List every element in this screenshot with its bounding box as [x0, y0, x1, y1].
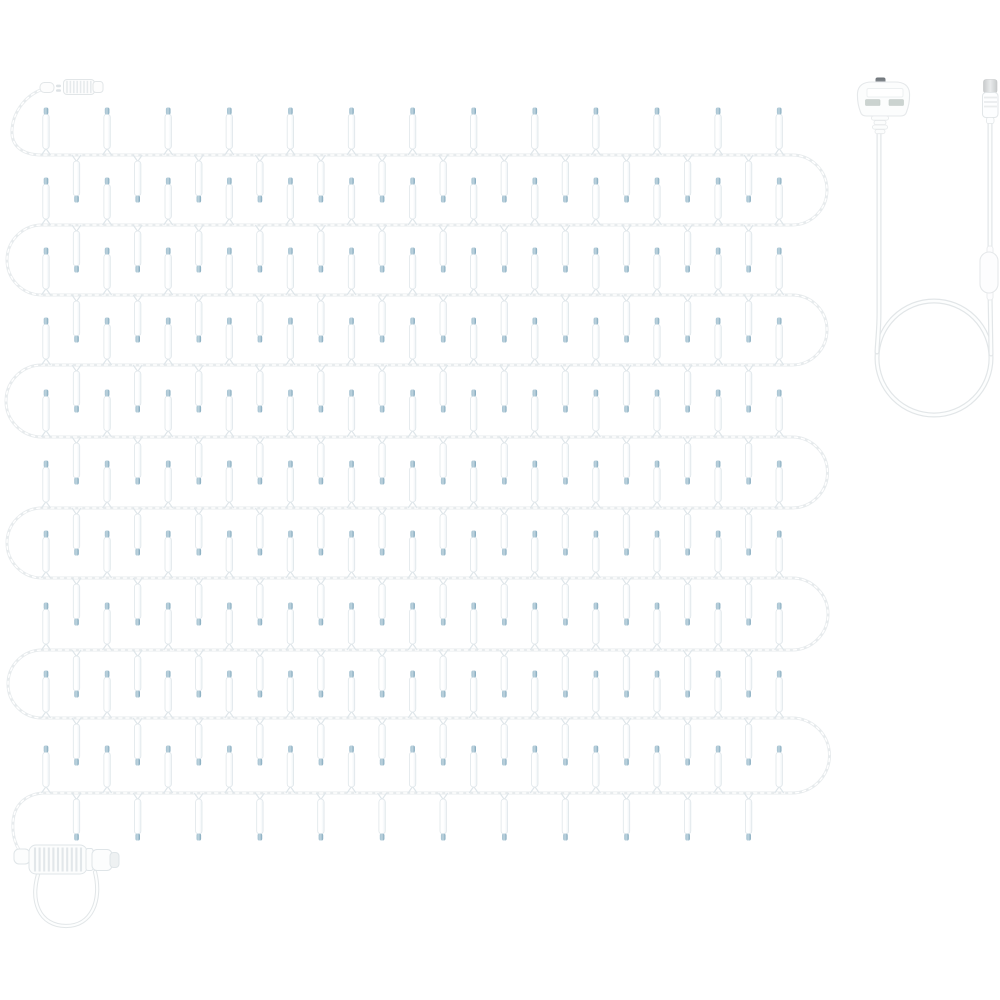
mini-bulb — [286, 531, 295, 579]
mini-bulb — [683, 155, 692, 203]
mini-bulb — [591, 108, 600, 156]
mini-bulb — [72, 225, 81, 273]
mini-bulb — [469, 461, 478, 509]
mini-bulb — [683, 578, 692, 626]
mini-bulb — [500, 295, 509, 343]
mini-bulb — [225, 318, 234, 366]
mini-bulb — [530, 671, 539, 719]
mini-bulb — [561, 225, 570, 273]
mini-bulb — [500, 155, 509, 203]
mini-bulb — [408, 603, 417, 651]
mini-bulb — [42, 603, 51, 651]
mini-bulb — [378, 650, 387, 698]
mini-bulb — [775, 531, 784, 579]
mini-bulb — [225, 108, 234, 156]
mini-bulb — [316, 508, 325, 556]
mini-bulb — [744, 295, 753, 343]
mini-bulb — [744, 650, 753, 698]
mini-bulb — [622, 365, 631, 413]
mini-bulb — [469, 531, 478, 579]
mini-bulb — [469, 746, 478, 794]
cable-ferrule — [14, 849, 30, 864]
mini-bulb — [775, 390, 784, 438]
strain-relief-rib — [874, 121, 886, 125]
mini-bulb — [744, 365, 753, 413]
mini-bulb — [286, 248, 295, 296]
mini-bulb — [286, 178, 295, 226]
mini-bulb — [561, 295, 570, 343]
mini-bulb — [469, 603, 478, 651]
mini-bulb — [408, 531, 417, 579]
mini-bulb — [316, 650, 325, 698]
mini-bulb — [255, 793, 264, 841]
mini-bulb — [225, 531, 234, 579]
mini-bulb — [347, 603, 356, 651]
mini-bulb — [347, 178, 356, 226]
mini-bulb — [622, 437, 631, 485]
mini-bulb — [316, 225, 325, 273]
mini-bulb — [286, 461, 295, 509]
mini-bulb — [744, 578, 753, 626]
string-end-connector — [14, 845, 119, 926]
power-lead — [857, 78, 998, 416]
mini-bulb — [775, 248, 784, 296]
mini-bulb — [683, 718, 692, 766]
mini-bulb — [286, 603, 295, 651]
mini-bulb — [42, 671, 51, 719]
mini-bulb — [775, 178, 784, 226]
mini-bulb — [775, 318, 784, 366]
mini-bulb — [255, 295, 264, 343]
mini-bulb — [530, 108, 539, 156]
mini-bulb — [133, 155, 142, 203]
mini-bulb — [561, 365, 570, 413]
mini-bulb — [408, 318, 417, 366]
mini-bulb — [164, 248, 173, 296]
mini-bulb — [164, 108, 173, 156]
mini-bulb — [775, 603, 784, 651]
mini-bulb — [194, 650, 203, 698]
mini-bulb — [744, 437, 753, 485]
product-photo — [0, 0, 1000, 1000]
mini-bulb — [255, 437, 264, 485]
mini-bulb — [72, 508, 81, 556]
mini-bulb — [469, 390, 478, 438]
mini-bulb — [72, 793, 81, 841]
mini-bulb — [683, 225, 692, 273]
mini-bulb — [347, 248, 356, 296]
mini-bulb — [194, 225, 203, 273]
mini-bulb — [530, 603, 539, 651]
mini-bulb — [255, 365, 264, 413]
mini-bulb — [133, 437, 142, 485]
string-start-connector — [40, 80, 103, 95]
mini-bulb — [653, 178, 662, 226]
mini-bulb — [744, 718, 753, 766]
mini-bulb — [347, 108, 356, 156]
inline-controller — [980, 246, 998, 300]
connector-cap — [984, 80, 998, 94]
mini-bulb — [255, 718, 264, 766]
mini-bulb — [316, 578, 325, 626]
mini-bulb — [378, 225, 387, 273]
mini-bulb — [194, 508, 203, 556]
mini-bulb — [316, 155, 325, 203]
mini-bulb — [103, 108, 112, 156]
mini-bulb — [591, 390, 600, 438]
mini-bulb — [714, 461, 723, 509]
mini-bulb — [683, 437, 692, 485]
string-lights-scene — [0, 0, 1000, 1000]
mini-bulb — [714, 390, 723, 438]
mini-bulb — [561, 155, 570, 203]
mini-bulb — [378, 578, 387, 626]
socket-end-cap — [93, 82, 103, 93]
mini-bulb — [714, 248, 723, 296]
mini-bulb — [714, 746, 723, 794]
mini-bulb — [714, 318, 723, 366]
mini-bulb — [439, 225, 448, 273]
mini-bulb — [744, 155, 753, 203]
mini-bulb — [683, 650, 692, 698]
mini-bulb — [255, 225, 264, 273]
mini-bulb — [378, 155, 387, 203]
mini-bulb — [561, 718, 570, 766]
mini-bulb — [133, 365, 142, 413]
mini-bulb — [530, 531, 539, 579]
mini-bulb — [133, 578, 142, 626]
mini-bulb — [133, 295, 142, 343]
mini-bulb — [225, 603, 234, 651]
mini-bulb — [408, 746, 417, 794]
mini-bulb — [439, 365, 448, 413]
mini-bulb — [500, 793, 509, 841]
mini-bulb — [225, 390, 234, 438]
mini-bulb — [316, 718, 325, 766]
mini-bulb — [225, 746, 234, 794]
mini-bulb — [378, 718, 387, 766]
mini-bulb — [714, 671, 723, 719]
uk-mains-plug — [857, 78, 909, 134]
mini-bulb — [194, 155, 203, 203]
mini-bulb — [378, 295, 387, 343]
mini-bulb — [500, 578, 509, 626]
mini-bulb — [622, 650, 631, 698]
mini-bulb — [775, 746, 784, 794]
mini-bulb — [500, 718, 509, 766]
mini-bulb — [469, 248, 478, 296]
mini-bulb — [225, 248, 234, 296]
mini-bulb — [194, 578, 203, 626]
mini-bulb — [164, 531, 173, 579]
mini-bulb — [622, 155, 631, 203]
mini-bulb — [225, 461, 234, 509]
mini-bulb — [683, 508, 692, 556]
plug-body — [857, 82, 909, 116]
mini-bulb — [347, 461, 356, 509]
mini-bulb — [439, 793, 448, 841]
mini-bulb — [133, 650, 142, 698]
mini-bulb — [316, 437, 325, 485]
mini-bulb — [530, 461, 539, 509]
mini-bulb — [408, 461, 417, 509]
mini-bulb — [469, 318, 478, 366]
mini-bulb — [164, 390, 173, 438]
mini-bulb — [286, 671, 295, 719]
mini-bulb — [683, 365, 692, 413]
mini-bulb — [653, 390, 662, 438]
mini-bulb — [530, 178, 539, 226]
male-plug-body — [92, 850, 112, 871]
mini-bulb — [591, 178, 600, 226]
mini-bulb — [469, 178, 478, 226]
mini-bulb — [72, 437, 81, 485]
mini-bulb — [103, 390, 112, 438]
mini-bulb — [103, 671, 112, 719]
mini-bulb — [133, 225, 142, 273]
mini-bulb — [622, 508, 631, 556]
mini-bulb — [622, 718, 631, 766]
mini-bulb — [500, 365, 509, 413]
mini-bulb — [103, 531, 112, 579]
plug-pin-right — [889, 100, 904, 106]
mini-bulb — [347, 746, 356, 794]
mini-bulb — [653, 248, 662, 296]
mini-bulb — [775, 461, 784, 509]
male-plug-tip — [110, 853, 119, 868]
mini-bulb — [683, 295, 692, 343]
mini-bulb — [286, 108, 295, 156]
mini-bulb — [469, 671, 478, 719]
mini-bulb — [408, 178, 417, 226]
mini-bulb — [316, 295, 325, 343]
mini-bulb — [530, 318, 539, 366]
mini-bulb — [439, 295, 448, 343]
mini-bulb — [316, 793, 325, 841]
mini-bulb — [194, 295, 203, 343]
mini-bulb — [72, 718, 81, 766]
mini-bulb — [378, 508, 387, 556]
mini-bulb — [316, 365, 325, 413]
mini-bulb — [622, 225, 631, 273]
mini-bulb — [500, 437, 509, 485]
mini-bulb — [591, 461, 600, 509]
mini-bulb — [653, 461, 662, 509]
mini-bulb — [775, 671, 784, 719]
mini-bulb — [591, 746, 600, 794]
mini-bulb — [164, 603, 173, 651]
mini-bulb — [347, 390, 356, 438]
mini-bulb — [439, 437, 448, 485]
mini-bulb — [744, 793, 753, 841]
mini-bulb — [439, 578, 448, 626]
mini-bulb — [255, 155, 264, 203]
mini-bulb — [408, 390, 417, 438]
mini-bulb — [378, 793, 387, 841]
barrel-connector — [983, 80, 999, 124]
mini-bulb — [347, 671, 356, 719]
mini-bulb — [653, 603, 662, 651]
mini-bulb — [347, 318, 356, 366]
mini-bulb — [653, 531, 662, 579]
mini-bulb — [42, 318, 51, 366]
mini-bulb — [469, 108, 478, 156]
fuse-cover-bar — [867, 89, 903, 98]
mini-bulb — [347, 531, 356, 579]
strain-relief-rib — [875, 130, 885, 134]
mini-bulb — [683, 793, 692, 841]
mini-bulb — [255, 578, 264, 626]
mini-bulb — [133, 508, 142, 556]
mini-bulb — [164, 318, 173, 366]
mini-bulb — [133, 793, 142, 841]
light-string-wire — [6, 88, 830, 856]
mini-bulb — [72, 650, 81, 698]
mini-bulb — [286, 318, 295, 366]
mini-bulb — [775, 108, 784, 156]
connector-pins — [56, 89, 61, 92]
mini-bulb — [408, 248, 417, 296]
mini-bulb — [714, 531, 723, 579]
mini-bulb — [133, 718, 142, 766]
mini-bulb — [500, 508, 509, 556]
mini-bulb — [653, 108, 662, 156]
mini-bulb — [103, 461, 112, 509]
strain-relief-rib — [872, 116, 889, 120]
mini-bulb — [42, 746, 51, 794]
plug-pin-left — [866, 100, 881, 106]
mini-bulb — [439, 718, 448, 766]
mini-bulb — [164, 178, 173, 226]
mini-bulb — [591, 248, 600, 296]
mini-bulb — [225, 178, 234, 226]
mini-bulb — [530, 248, 539, 296]
mini-bulb — [622, 793, 631, 841]
mini-bulb — [591, 531, 600, 579]
mini-bulb — [42, 531, 51, 579]
mini-bulb — [439, 508, 448, 556]
mini-bulb — [500, 650, 509, 698]
mini-bulb — [194, 365, 203, 413]
controller-body — [980, 252, 998, 293]
mini-bulb — [530, 390, 539, 438]
mini-bulb — [42, 248, 51, 296]
mini-bulb — [72, 155, 81, 203]
mini-bulb — [255, 650, 264, 698]
mini-bulb — [591, 603, 600, 651]
mini-bulb — [744, 508, 753, 556]
mini-bulb — [42, 461, 51, 509]
connector-pins — [56, 85, 61, 88]
mini-bulb — [225, 671, 234, 719]
connector-body — [983, 93, 999, 118]
mini-bulb — [714, 603, 723, 651]
mini-bulb — [653, 318, 662, 366]
mini-bulb — [103, 746, 112, 794]
mini-bulb — [72, 365, 81, 413]
mini-bulb — [622, 295, 631, 343]
mini-bulb — [164, 746, 173, 794]
mini-bulb — [286, 746, 295, 794]
mini-bulb — [103, 603, 112, 651]
mini-bulb — [744, 225, 753, 273]
mini-bulb — [164, 461, 173, 509]
mini-bulb — [591, 318, 600, 366]
mini-bulb — [103, 318, 112, 366]
mini-bulb — [378, 365, 387, 413]
mini-bulb — [408, 671, 417, 719]
mini-bulb — [408, 108, 417, 156]
mini-light-bulbs — [42, 108, 784, 841]
strain-relief-rib — [873, 125, 888, 129]
mini-bulb — [194, 437, 203, 485]
mini-bulb — [42, 178, 51, 226]
mini-bulb — [72, 578, 81, 626]
mini-bulb — [378, 437, 387, 485]
mini-bulb — [103, 248, 112, 296]
mini-bulb — [439, 650, 448, 698]
female-socket-barrel — [64, 80, 95, 95]
mini-bulb — [714, 108, 723, 156]
mini-bulb — [194, 718, 203, 766]
mini-bulb — [622, 578, 631, 626]
mini-bulb — [714, 178, 723, 226]
mini-bulb — [653, 671, 662, 719]
mini-bulb — [42, 390, 51, 438]
mini-bulb — [72, 295, 81, 343]
mini-bulb — [561, 578, 570, 626]
mini-bulb — [439, 155, 448, 203]
mini-bulb — [286, 390, 295, 438]
mini-bulb — [561, 793, 570, 841]
mini-bulb — [500, 225, 509, 273]
mini-bulb — [561, 650, 570, 698]
connector-neck — [987, 118, 995, 124]
male-plug-tip — [40, 83, 54, 93]
mini-bulb — [653, 746, 662, 794]
mini-bulb — [255, 508, 264, 556]
mini-bulb — [591, 671, 600, 719]
mini-bulb — [194, 793, 203, 841]
mini-bulb — [103, 178, 112, 226]
mini-bulb — [530, 746, 539, 794]
mini-bulb — [561, 437, 570, 485]
mini-bulb — [561, 508, 570, 556]
mini-bulb — [164, 671, 173, 719]
mini-bulb — [42, 108, 51, 156]
